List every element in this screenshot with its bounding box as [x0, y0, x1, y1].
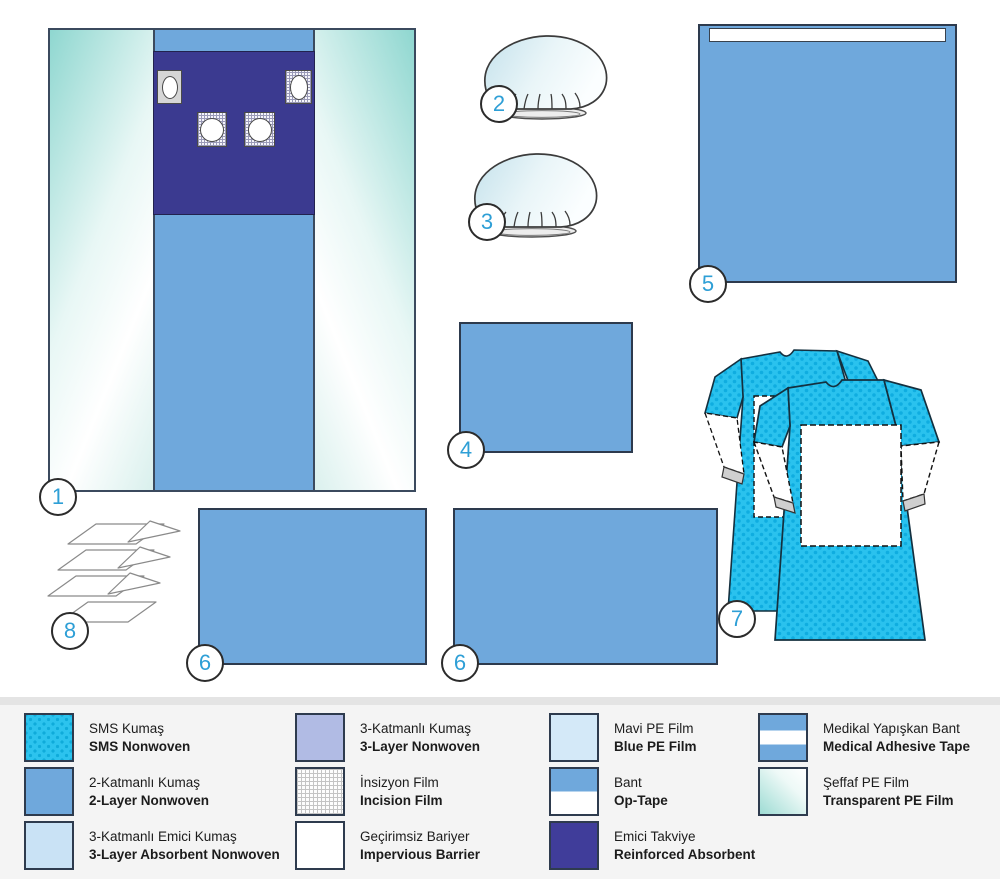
item-badge-7: 7 — [718, 600, 756, 638]
legend-entry-medical-adhesive-tape: Medikal Yapışkan Bant Medical Adhesive T… — [758, 713, 970, 762]
badge-number: 6 — [199, 650, 211, 676]
legend-entry-2layer-nonwoven: 2-Katmanlı Kumaş 2-Layer Nonwoven — [24, 767, 280, 816]
legend-entry-3layer-absorbent: 3-Katmanlı Emici Kumaş 3-Layer Absorbent… — [24, 821, 280, 870]
legend-entry-3layer-nonwoven: 3-Katmanlı Kumaş 3-Layer Nonwoven — [295, 713, 480, 762]
incision-film-pad-2 — [244, 112, 275, 147]
incision-film-tab-right — [285, 70, 312, 104]
legend-entry-blue-pe-film: Mavi PE Film Blue PE Film — [549, 713, 755, 762]
legend-entry-sms-nonwoven: SMS Kumaş SMS Nonwoven — [24, 713, 280, 762]
legend-label-tr: Medikal Yapışkan Bant — [823, 720, 970, 738]
badge-number: 1 — [52, 484, 64, 510]
legend-label-en: Impervious Barrier — [360, 846, 480, 864]
legend-label-en: Incision Film — [360, 792, 443, 810]
legend-swatch-3layer-nonwoven — [295, 713, 345, 762]
legend-entry-impervious-barrier: Geçirimsiz Bariyer Impervious Barrier — [295, 821, 480, 870]
legend-label-en: Op-Tape — [614, 792, 668, 810]
legend-column-3: Mavi PE Film Blue PE Film Bant Op-Tape E… — [549, 713, 755, 870]
surgical-pack-diagram: 1 2 3 4 5 6 6 7 8 SMS Kumaş SMS Nonwoven… — [0, 0, 1000, 879]
fenestration-circle-1 — [200, 118, 224, 142]
legend-entry-transparent-pe-film: Şeffaf PE Film Transparent PE Film — [758, 767, 970, 816]
item-badge-3: 3 — [468, 203, 506, 241]
materials-legend: SMS Kumaş SMS Nonwoven 2-Katmanlı Kumaş … — [0, 705, 1000, 879]
legend-swatch-2layer-nonwoven — [24, 767, 74, 816]
badge-number: 3 — [481, 209, 493, 235]
legend-swatch-impervious-barrier — [295, 821, 345, 870]
legend-label-en: SMS Nonwoven — [89, 738, 190, 756]
item-badge-5: 5 — [689, 265, 727, 303]
legend-column-2: 3-Katmanlı Kumaş 3-Layer Nonwoven İnsizy… — [295, 713, 480, 870]
fenestration-oval-left — [162, 76, 178, 99]
legend-swatch-op-tape — [549, 767, 599, 816]
legend-label-en: 2-Layer Nonwoven — [89, 792, 209, 810]
legend-label-en: Reinforced Absorbent — [614, 846, 755, 864]
drape-with-op-tape — [698, 24, 957, 283]
legend-column-1: SMS Kumaş SMS Nonwoven 2-Katmanlı Kumaş … — [24, 713, 280, 870]
item-badge-2: 2 — [480, 85, 518, 123]
side-drape-left — [198, 508, 427, 665]
legend-entry-op-tape: Bant Op-Tape — [549, 767, 755, 816]
item-badge-6b: 6 — [441, 644, 479, 682]
legend-column-4: Medikal Yapışkan Bant Medical Adhesive T… — [758, 713, 970, 816]
fenestration-oval-right — [290, 75, 308, 100]
plain-drape-small — [459, 322, 633, 453]
legend-label-en: 3-Layer Absorbent Nonwoven — [89, 846, 280, 864]
fenestration-circle-2 — [248, 118, 272, 142]
transparent-pe-film-panel-right — [311, 30, 414, 490]
badge-number: 4 — [460, 437, 472, 463]
item-badge-4: 4 — [447, 431, 485, 469]
adhesive-tab-left — [157, 70, 182, 104]
legend-label-tr: Emici Takviye — [614, 828, 755, 846]
legend-label-en: Transparent PE Film — [823, 792, 954, 810]
legend-label-tr: Şeffaf PE Film — [823, 774, 954, 792]
op-tape-strip — [709, 28, 946, 42]
badge-number: 6 — [454, 650, 466, 676]
badge-number: 2 — [493, 91, 505, 117]
legend-swatch-reinforced-absorbent — [549, 821, 599, 870]
legend-swatch-sms-nonwoven — [24, 713, 74, 762]
main-surgical-drape — [48, 28, 416, 492]
legend-entry-incision-film: İnsizyon Film Incision Film — [295, 767, 480, 816]
badge-number: 7 — [731, 606, 743, 632]
legend-swatch-blue-pe-film — [549, 713, 599, 762]
legend-label-en: Blue PE Film — [614, 738, 697, 756]
legend-label-tr: İnsizyon Film — [360, 774, 443, 792]
legend-label-tr: 3-Katmanlı Kumaş — [360, 720, 480, 738]
legend-label-tr: SMS Kumaş — [89, 720, 190, 738]
item-badge-8: 8 — [51, 612, 89, 650]
legend-swatch-3layer-absorbent — [24, 821, 74, 870]
legend-label-tr: Mavi PE Film — [614, 720, 697, 738]
legend-label-en: Medical Adhesive Tape — [823, 738, 970, 756]
legend-entry-reinforced-absorbent: Emici Takviye Reinforced Absorbent — [549, 821, 755, 870]
legend-swatch-transparent-pe-film — [758, 767, 808, 816]
incision-film-pad-1 — [197, 112, 227, 147]
legend-label-tr: Bant — [614, 774, 668, 792]
badge-number: 5 — [702, 271, 714, 297]
legend-label-tr: Geçirimsiz Bariyer — [360, 828, 480, 846]
side-drape-right — [453, 508, 718, 665]
item-badge-6a: 6 — [186, 644, 224, 682]
transparent-pe-film-panel-left — [50, 30, 153, 490]
item-badge-1: 1 — [39, 478, 77, 516]
legend-label-tr: 2-Katmanlı Kumaş — [89, 774, 209, 792]
legend-label-en: 3-Layer Nonwoven — [360, 738, 480, 756]
legend-top-divider — [0, 697, 1000, 705]
legend-label-tr: 3-Katmanlı Emici Kumaş — [89, 828, 280, 846]
legend-swatch-incision-film — [295, 767, 345, 816]
badge-number: 8 — [64, 618, 76, 644]
legend-swatch-medical-adhesive-tape — [758, 713, 808, 762]
